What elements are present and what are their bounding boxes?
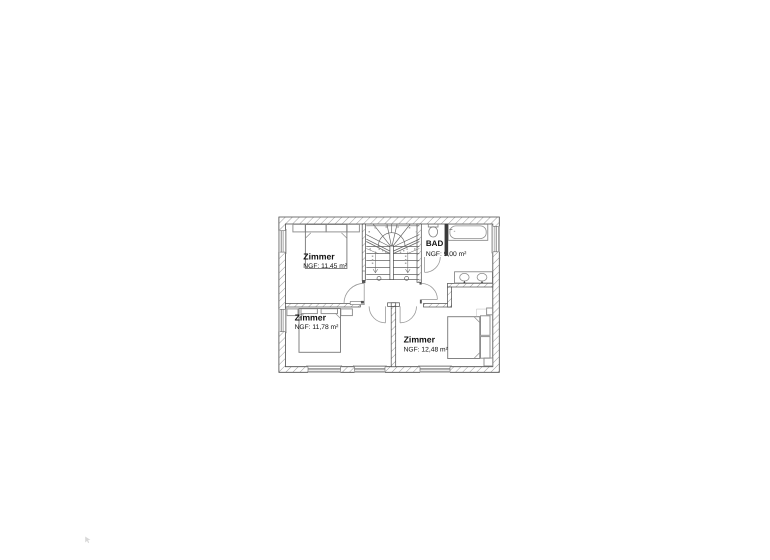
- svg-text:BAD: BAD: [426, 239, 444, 248]
- svg-text:Zimmer: Zimmer: [303, 252, 335, 262]
- svg-text:Zimmer: Zimmer: [295, 313, 327, 323]
- svg-text:NGF: 11,78 m²: NGF: 11,78 m²: [295, 324, 339, 331]
- svg-text:Zimmer: Zimmer: [404, 335, 436, 345]
- svg-text:NGF: 11,45 m²: NGF: 11,45 m²: [303, 263, 347, 270]
- svg-text:NGF: 12,48 m²: NGF: 12,48 m²: [404, 346, 449, 353]
